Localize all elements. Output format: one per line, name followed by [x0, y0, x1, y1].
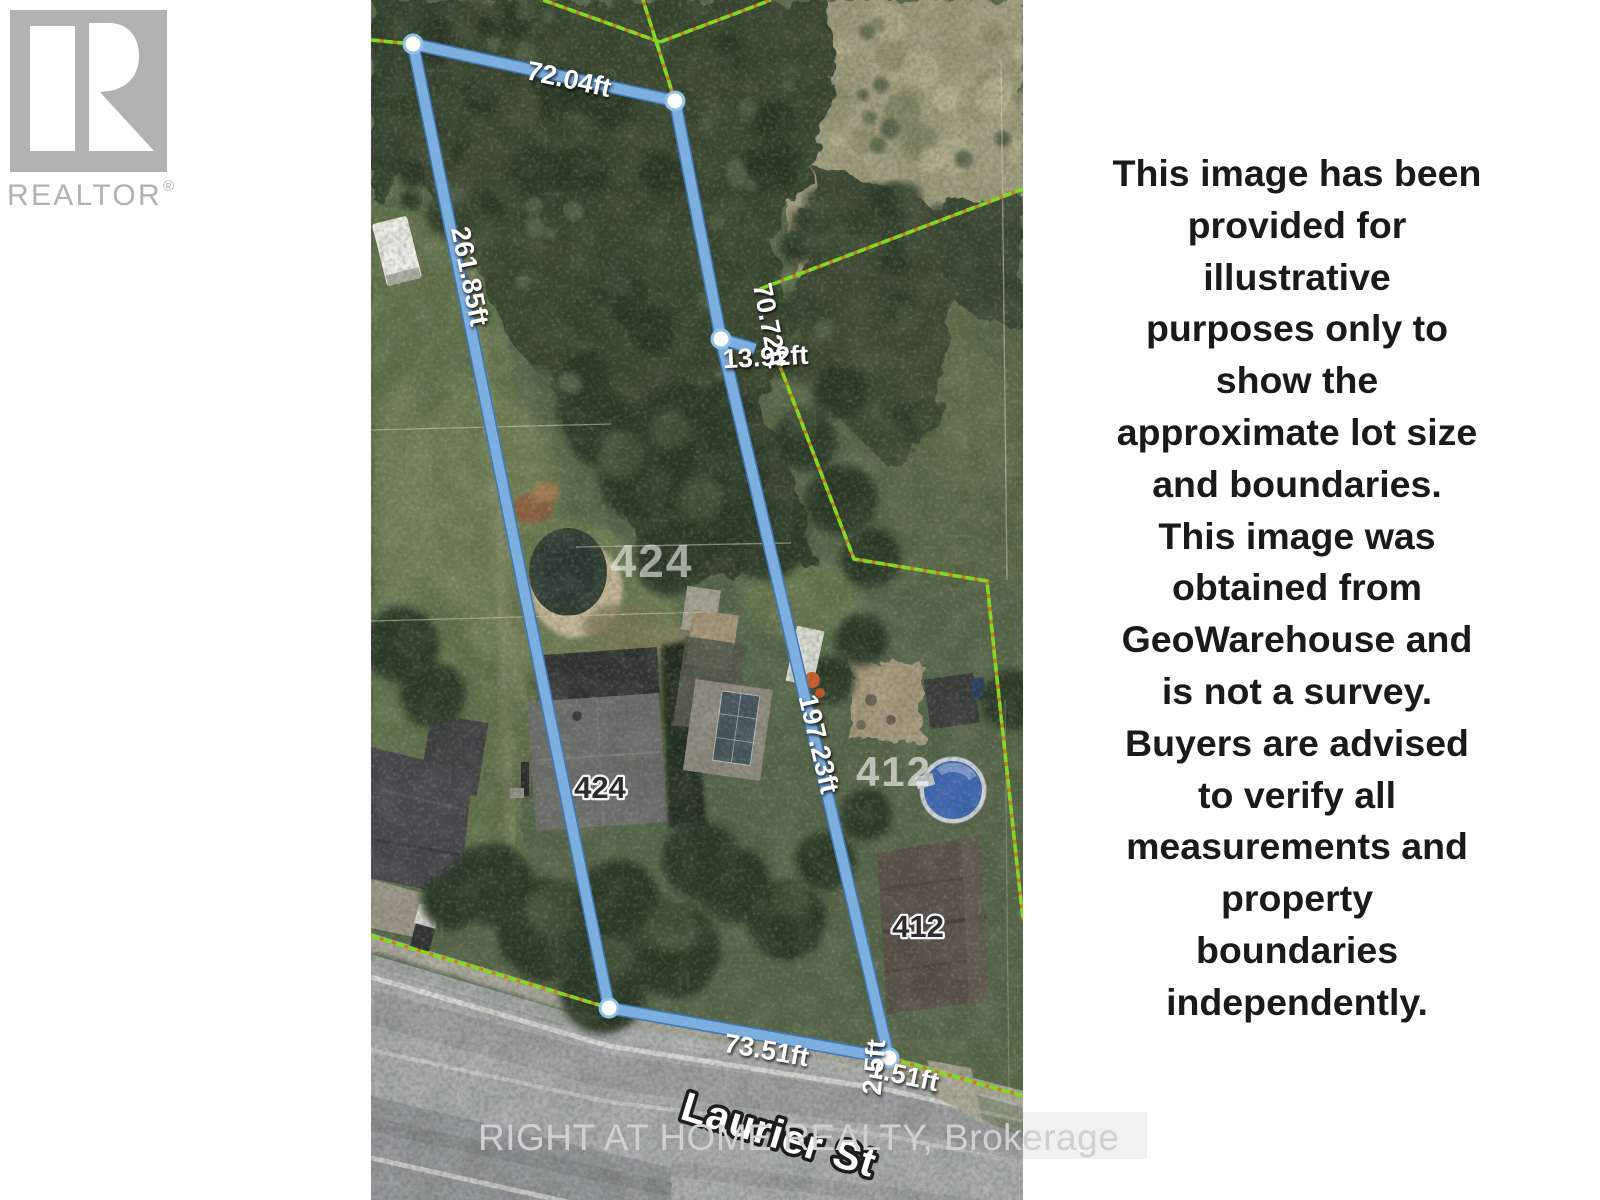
- svg-text:412: 412: [856, 748, 932, 795]
- svg-text:424: 424: [611, 535, 694, 587]
- svg-text:2.5ft: 2.5ft: [857, 1038, 892, 1096]
- svg-text:13.92ft: 13.92ft: [722, 340, 809, 374]
- svg-text:424: 424: [574, 770, 626, 805]
- svg-text:412: 412: [892, 909, 944, 944]
